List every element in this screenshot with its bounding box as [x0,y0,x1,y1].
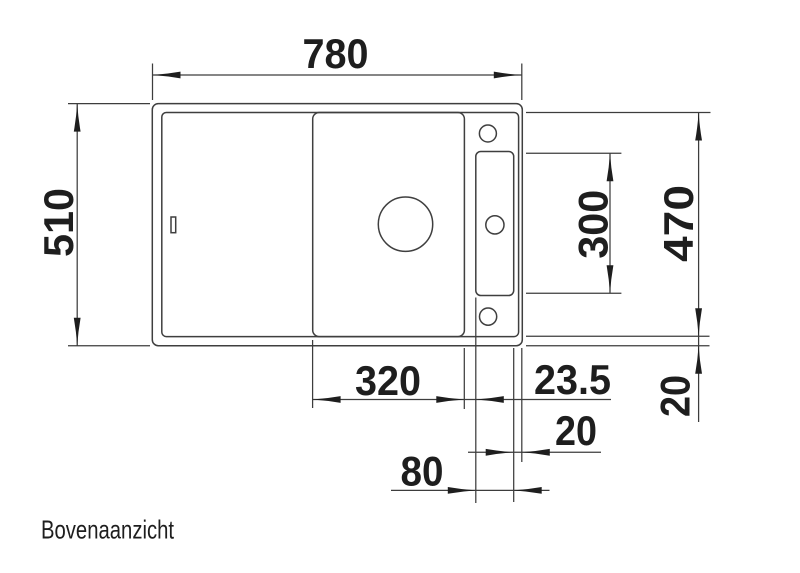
svg-text:320: 320 [355,357,421,404]
svg-text:20: 20 [652,375,699,417]
svg-text:300: 300 [570,190,617,259]
svg-text:20: 20 [555,407,597,454]
svg-text:780: 780 [303,30,369,77]
svg-text:510: 510 [35,188,82,257]
svg-text:80: 80 [401,448,444,495]
svg-text:470: 470 [655,185,702,262]
svg-text:23.5: 23.5 [534,356,611,403]
svg-text:Bovenaanzicht: Bovenaanzicht [41,515,175,545]
